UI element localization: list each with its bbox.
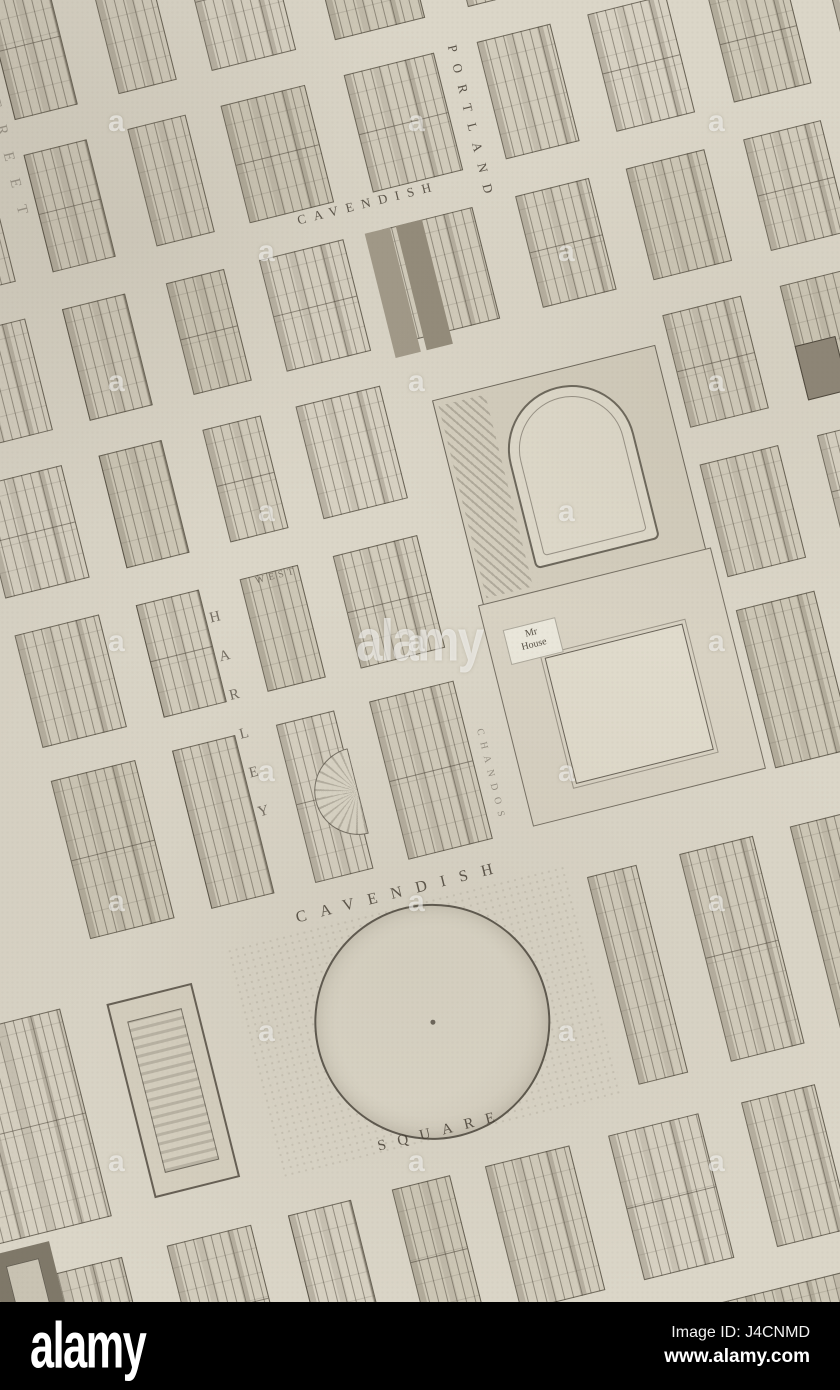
city-block (587, 0, 695, 132)
city-block (84, 0, 177, 94)
city-block (127, 115, 214, 247)
city-block (0, 0, 78, 120)
alamy-footer-bar: alamy Image ID: J4CNMD www.alamy.com (0, 1302, 840, 1390)
city-block (0, 1009, 112, 1255)
city-block (485, 1145, 605, 1302)
city-block (817, 416, 840, 548)
city-block (699, 445, 806, 577)
city-block (14, 614, 126, 748)
city-block (0, 465, 90, 599)
city-block (369, 681, 493, 860)
city-block (177, 0, 296, 71)
city-block (62, 294, 153, 421)
city-block (741, 1084, 840, 1247)
courtyard-house (106, 983, 240, 1198)
city-block (202, 415, 288, 542)
antique-map-image: Mr House CAVENDISH PORTLAND HARLEY CHAND… (0, 0, 840, 1302)
city-block (51, 760, 175, 939)
screenshot-stage: Mr House CAVENDISH PORTLAND HARLEY CHAND… (0, 0, 840, 1390)
city-block (743, 120, 840, 251)
city-block (790, 807, 840, 1034)
city-block (259, 239, 371, 372)
city-block (515, 178, 617, 308)
image-id-text: Image ID: J4CNMD (664, 1322, 810, 1344)
city-block (434, 0, 542, 7)
footer-info: Image ID: J4CNMD www.alamy.com (664, 1322, 810, 1369)
city-block (477, 24, 580, 160)
city-block (608, 1113, 734, 1280)
rotated-street-grid: Mr House CAVENDISH PORTLAND HARLEY CHAND… (0, 0, 840, 1302)
city-block (301, 0, 426, 40)
city-block (821, 0, 840, 74)
city-block (220, 85, 334, 223)
city-block (344, 53, 464, 193)
city-block (626, 149, 732, 280)
city-block (333, 535, 445, 669)
city-block (705, 0, 812, 103)
city-block (392, 1175, 486, 1302)
alamy-logo: alamy (30, 1314, 145, 1379)
city-block (679, 836, 805, 1062)
city-block (288, 1200, 387, 1302)
city-block (167, 1225, 287, 1302)
alamy-url-text: www.alamy.com (664, 1344, 810, 1370)
city-block (662, 296, 769, 428)
city-block (98, 440, 189, 568)
city-block (166, 269, 252, 395)
city-block (240, 565, 326, 692)
city-block (295, 386, 407, 520)
dark-building (795, 336, 840, 400)
